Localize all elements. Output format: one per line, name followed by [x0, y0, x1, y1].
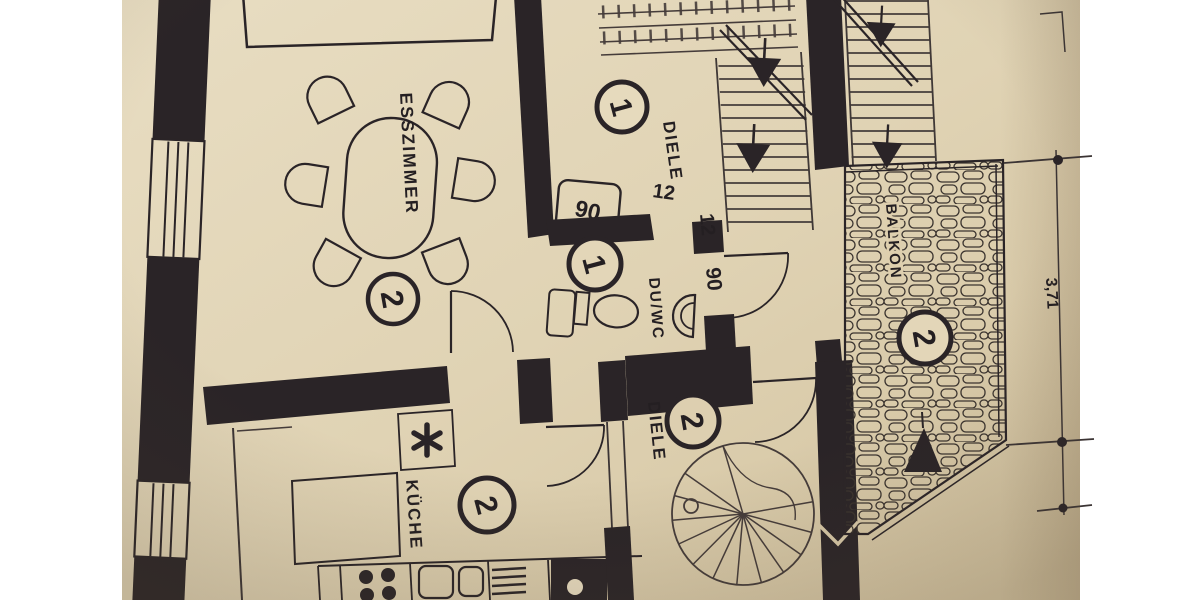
floor-plan-photo: ESSZIMMER 2 1 DIELE [0, 0, 1200, 600]
photo-vignette [122, 0, 1080, 600]
